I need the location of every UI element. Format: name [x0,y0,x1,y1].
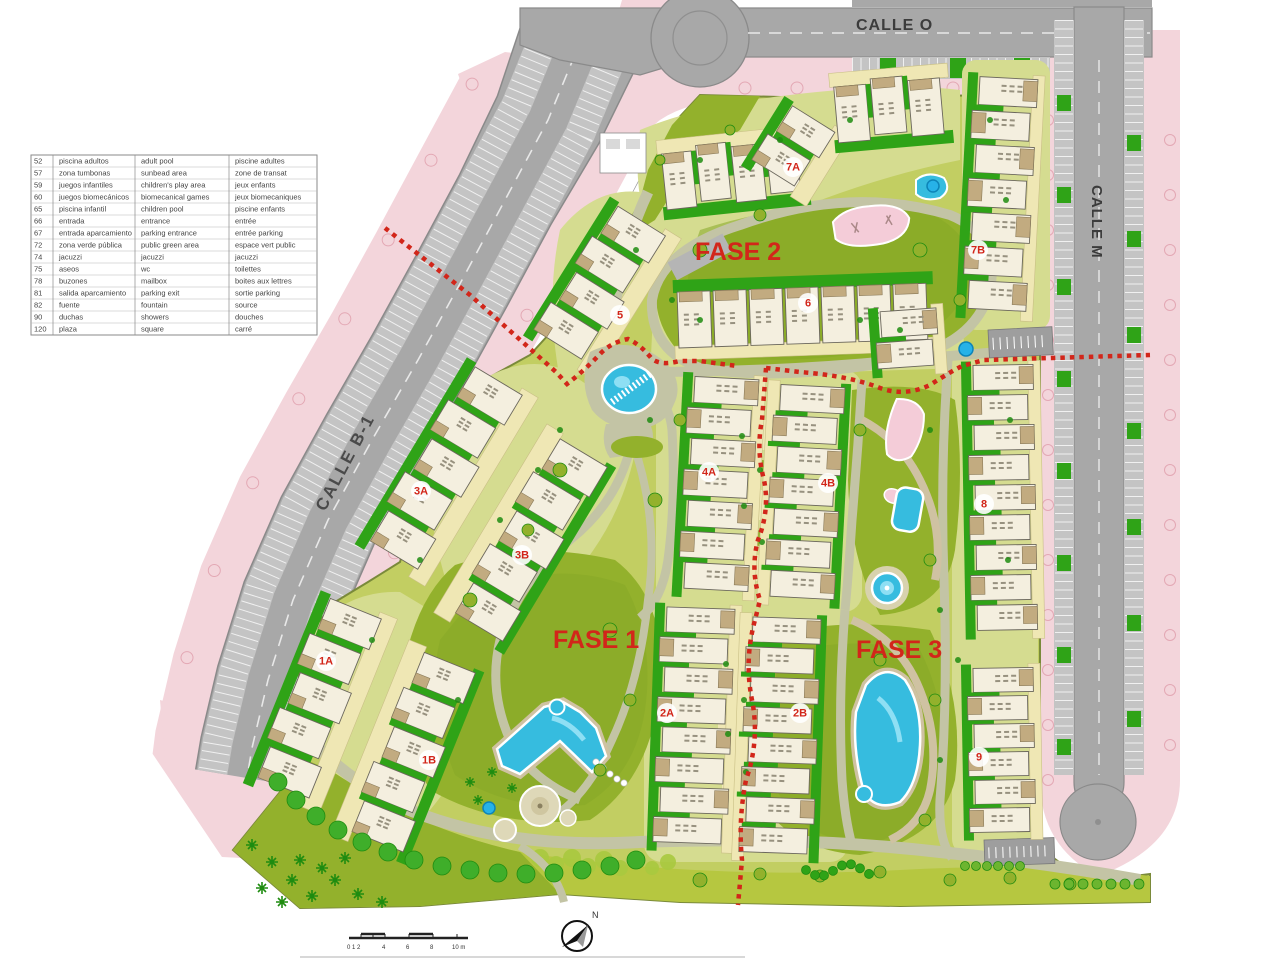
svg-text:67: 67 [34,229,42,238]
svg-text:52: 52 [34,157,42,166]
svg-text:jeux biomecaniques: jeux biomecaniques [234,193,302,202]
svg-text:zona tumbonas: zona tumbonas [59,169,111,178]
svg-text:78: 78 [34,277,42,286]
svg-text:74: 74 [34,253,42,262]
svg-text:82: 82 [34,301,42,310]
svg-text:children's play area: children's play area [141,181,206,190]
svg-text:5: 5 [617,310,623,322]
svg-text:mailbox: mailbox [141,277,167,286]
svg-text:CALLE M: CALLE M [1088,185,1105,259]
svg-text:59: 59 [34,181,42,190]
svg-text:entrada: entrada [59,217,85,226]
svg-text:1B: 1B [422,755,436,767]
svg-text:10 m: 10 m [452,945,465,951]
svg-text:buzones: buzones [59,277,88,286]
svg-text:jacuzzi: jacuzzi [234,253,258,262]
svg-text:wc: wc [140,265,150,274]
svg-text:adult pool: adult pool [141,157,174,166]
svg-text:FASE 1: FASE 1 [553,626,639,654]
svg-text:entrée parking: entrée parking [235,229,283,238]
svg-text:parking exit: parking exit [141,289,180,298]
svg-text:piscina adultos: piscina adultos [59,157,109,166]
svg-text:toilettes: toilettes [235,265,261,274]
svg-text:parking entrance: parking entrance [141,229,197,238]
svg-text:8: 8 [981,499,987,511]
svg-text:entrada aparcamiento: entrada aparcamiento [59,229,132,238]
svg-text:CALLE O: CALLE O [856,17,933,34]
svg-text:120: 120 [34,325,47,334]
svg-text:75: 75 [34,265,42,274]
svg-text:57: 57 [34,169,42,178]
svg-text:2B: 2B [793,708,807,720]
svg-text:sunbead area: sunbead area [141,169,188,178]
svg-text:3B: 3B [515,550,529,562]
svg-text:sortie parking: sortie parking [235,289,280,298]
svg-text:fountain: fountain [141,301,168,310]
svg-text:biomecanical games: biomecanical games [141,193,210,202]
svg-text:source: source [235,301,258,310]
svg-text:81: 81 [34,289,42,298]
svg-text:piscina infantil: piscina infantil [59,205,106,214]
svg-text:douches: douches [235,313,264,322]
svg-text:fuente: fuente [59,301,80,310]
svg-text:espace vert public: espace vert public [235,241,296,250]
svg-text:9: 9 [976,752,982,764]
svg-text:piscine enfants: piscine enfants [235,205,285,214]
svg-text:N: N [592,910,599,920]
svg-text:children pool: children pool [141,205,184,214]
svg-text:carré: carré [235,325,252,334]
svg-text:zona verde pública: zona verde pública [59,241,123,250]
svg-text:4A: 4A [702,467,716,479]
svg-text:zone de transat: zone de transat [235,169,288,178]
svg-text:1A: 1A [319,656,333,668]
svg-text:jacuzzi: jacuzzi [58,253,82,262]
svg-text:juegos infantiles: juegos infantiles [58,181,113,190]
svg-text:72: 72 [34,241,42,250]
svg-text:square: square [141,325,164,334]
svg-text:60: 60 [34,193,42,202]
svg-text:plaza: plaza [59,325,78,334]
svg-text:entrée: entrée [235,217,256,226]
svg-text:FASE 3: FASE 3 [856,636,942,664]
svg-text:7B: 7B [971,245,985,257]
svg-text:salida aparcamiento: salida aparcamiento [59,289,126,298]
svg-text:3A: 3A [414,486,428,498]
svg-text:7A: 7A [786,162,800,174]
svg-text:65: 65 [34,205,42,214]
svg-text:duchas: duchas [59,313,83,322]
svg-text:4B: 4B [821,478,835,490]
svg-text:juegos biomecánicos: juegos biomecánicos [58,193,129,202]
svg-text:showers: showers [141,313,169,322]
svg-text:FASE 2: FASE 2 [695,238,781,266]
svg-text:boites aux lettres: boites aux lettres [235,277,292,286]
svg-text:entrance: entrance [141,217,170,226]
svg-text:90: 90 [34,313,42,322]
svg-text:66: 66 [34,217,42,226]
svg-text:piscine adultes: piscine adultes [235,157,285,166]
svg-text:aseos: aseos [59,265,79,274]
svg-text:6: 6 [805,298,811,310]
svg-text:public green area: public green area [141,241,200,250]
svg-text:jeux enfants: jeux enfants [234,181,276,190]
svg-text:0 1 2: 0 1 2 [347,945,361,951]
svg-text:2A: 2A [660,708,674,720]
svg-text:jacuzzi: jacuzzi [140,253,164,262]
